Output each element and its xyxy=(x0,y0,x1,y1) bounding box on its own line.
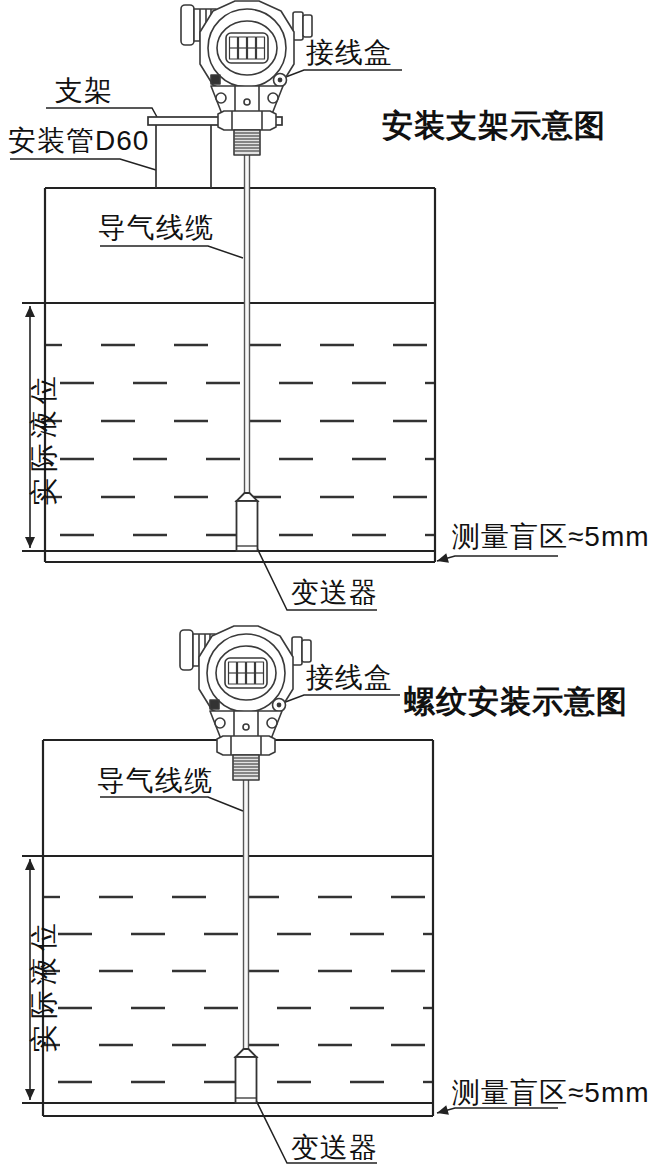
actual-level-label-2: 实际液位 xyxy=(29,900,63,1070)
transmitter-label-1: 变送器 xyxy=(291,578,378,607)
transmitter-label-2: 变送器 xyxy=(291,1133,378,1162)
junction-box-label-1: 接线盒 xyxy=(306,38,393,67)
blind-zone-label-2: 测量盲区≈5mm xyxy=(452,1078,650,1107)
air-cable-2 xyxy=(244,780,249,1049)
diagram1-title: 安装支架示意图 xyxy=(382,110,606,143)
probe-transmitter-2 xyxy=(236,1049,257,1103)
air-cable-leader-2 xyxy=(100,797,243,811)
blind-zone-label-1: 测量盲区≈5mm xyxy=(452,522,650,551)
mounting-pipe-leader xyxy=(10,159,156,170)
blind-zone-arrow-1 xyxy=(437,556,558,561)
diagram2-title: 螺纹安装示意图 xyxy=(404,686,628,719)
tank-1 xyxy=(22,188,435,562)
bracket-label: 支架 xyxy=(55,76,113,105)
air-cable-label-1: 导气线缆 xyxy=(98,213,214,242)
junction-box-leader-2 xyxy=(272,695,400,707)
mounting-pipe-label: 安装管D60 xyxy=(8,126,149,155)
air-cable-1 xyxy=(245,155,250,493)
actual-level-label-1: 实际液位 xyxy=(29,353,63,523)
blind-zone-arrow-2 xyxy=(437,1108,558,1113)
junction-box-label-2: 接线盒 xyxy=(306,663,393,692)
transmitter-head-1 xyxy=(181,1,312,155)
air-cable-leader-1 xyxy=(100,246,243,258)
probe-transmitter-1 xyxy=(237,493,258,551)
bracket-leader xyxy=(46,108,157,117)
transmitter-head-2 xyxy=(180,626,311,780)
air-cable-label-2: 导气线缆 xyxy=(97,766,213,795)
tank-2 xyxy=(22,740,433,1116)
